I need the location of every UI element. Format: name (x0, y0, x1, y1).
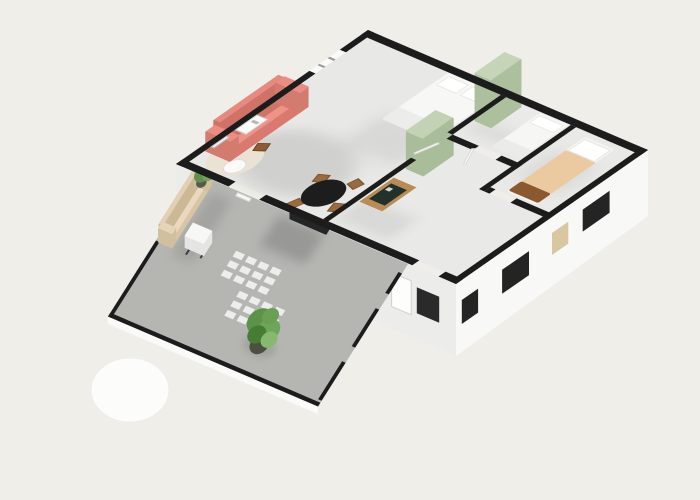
paver-tile (263, 276, 275, 285)
paver-tile (224, 310, 236, 319)
paver-tile (257, 286, 269, 295)
paver-tile (245, 280, 257, 289)
paver-tile (227, 260, 239, 269)
paver-tile (251, 271, 263, 280)
paver-tile (221, 270, 233, 279)
paver-tile (230, 300, 242, 309)
round-white-rug[interactable] (91, 358, 169, 422)
floorplan-3d-viewport[interactable] (0, 0, 700, 500)
paver-tile (233, 275, 245, 284)
paver-tile (239, 266, 251, 275)
